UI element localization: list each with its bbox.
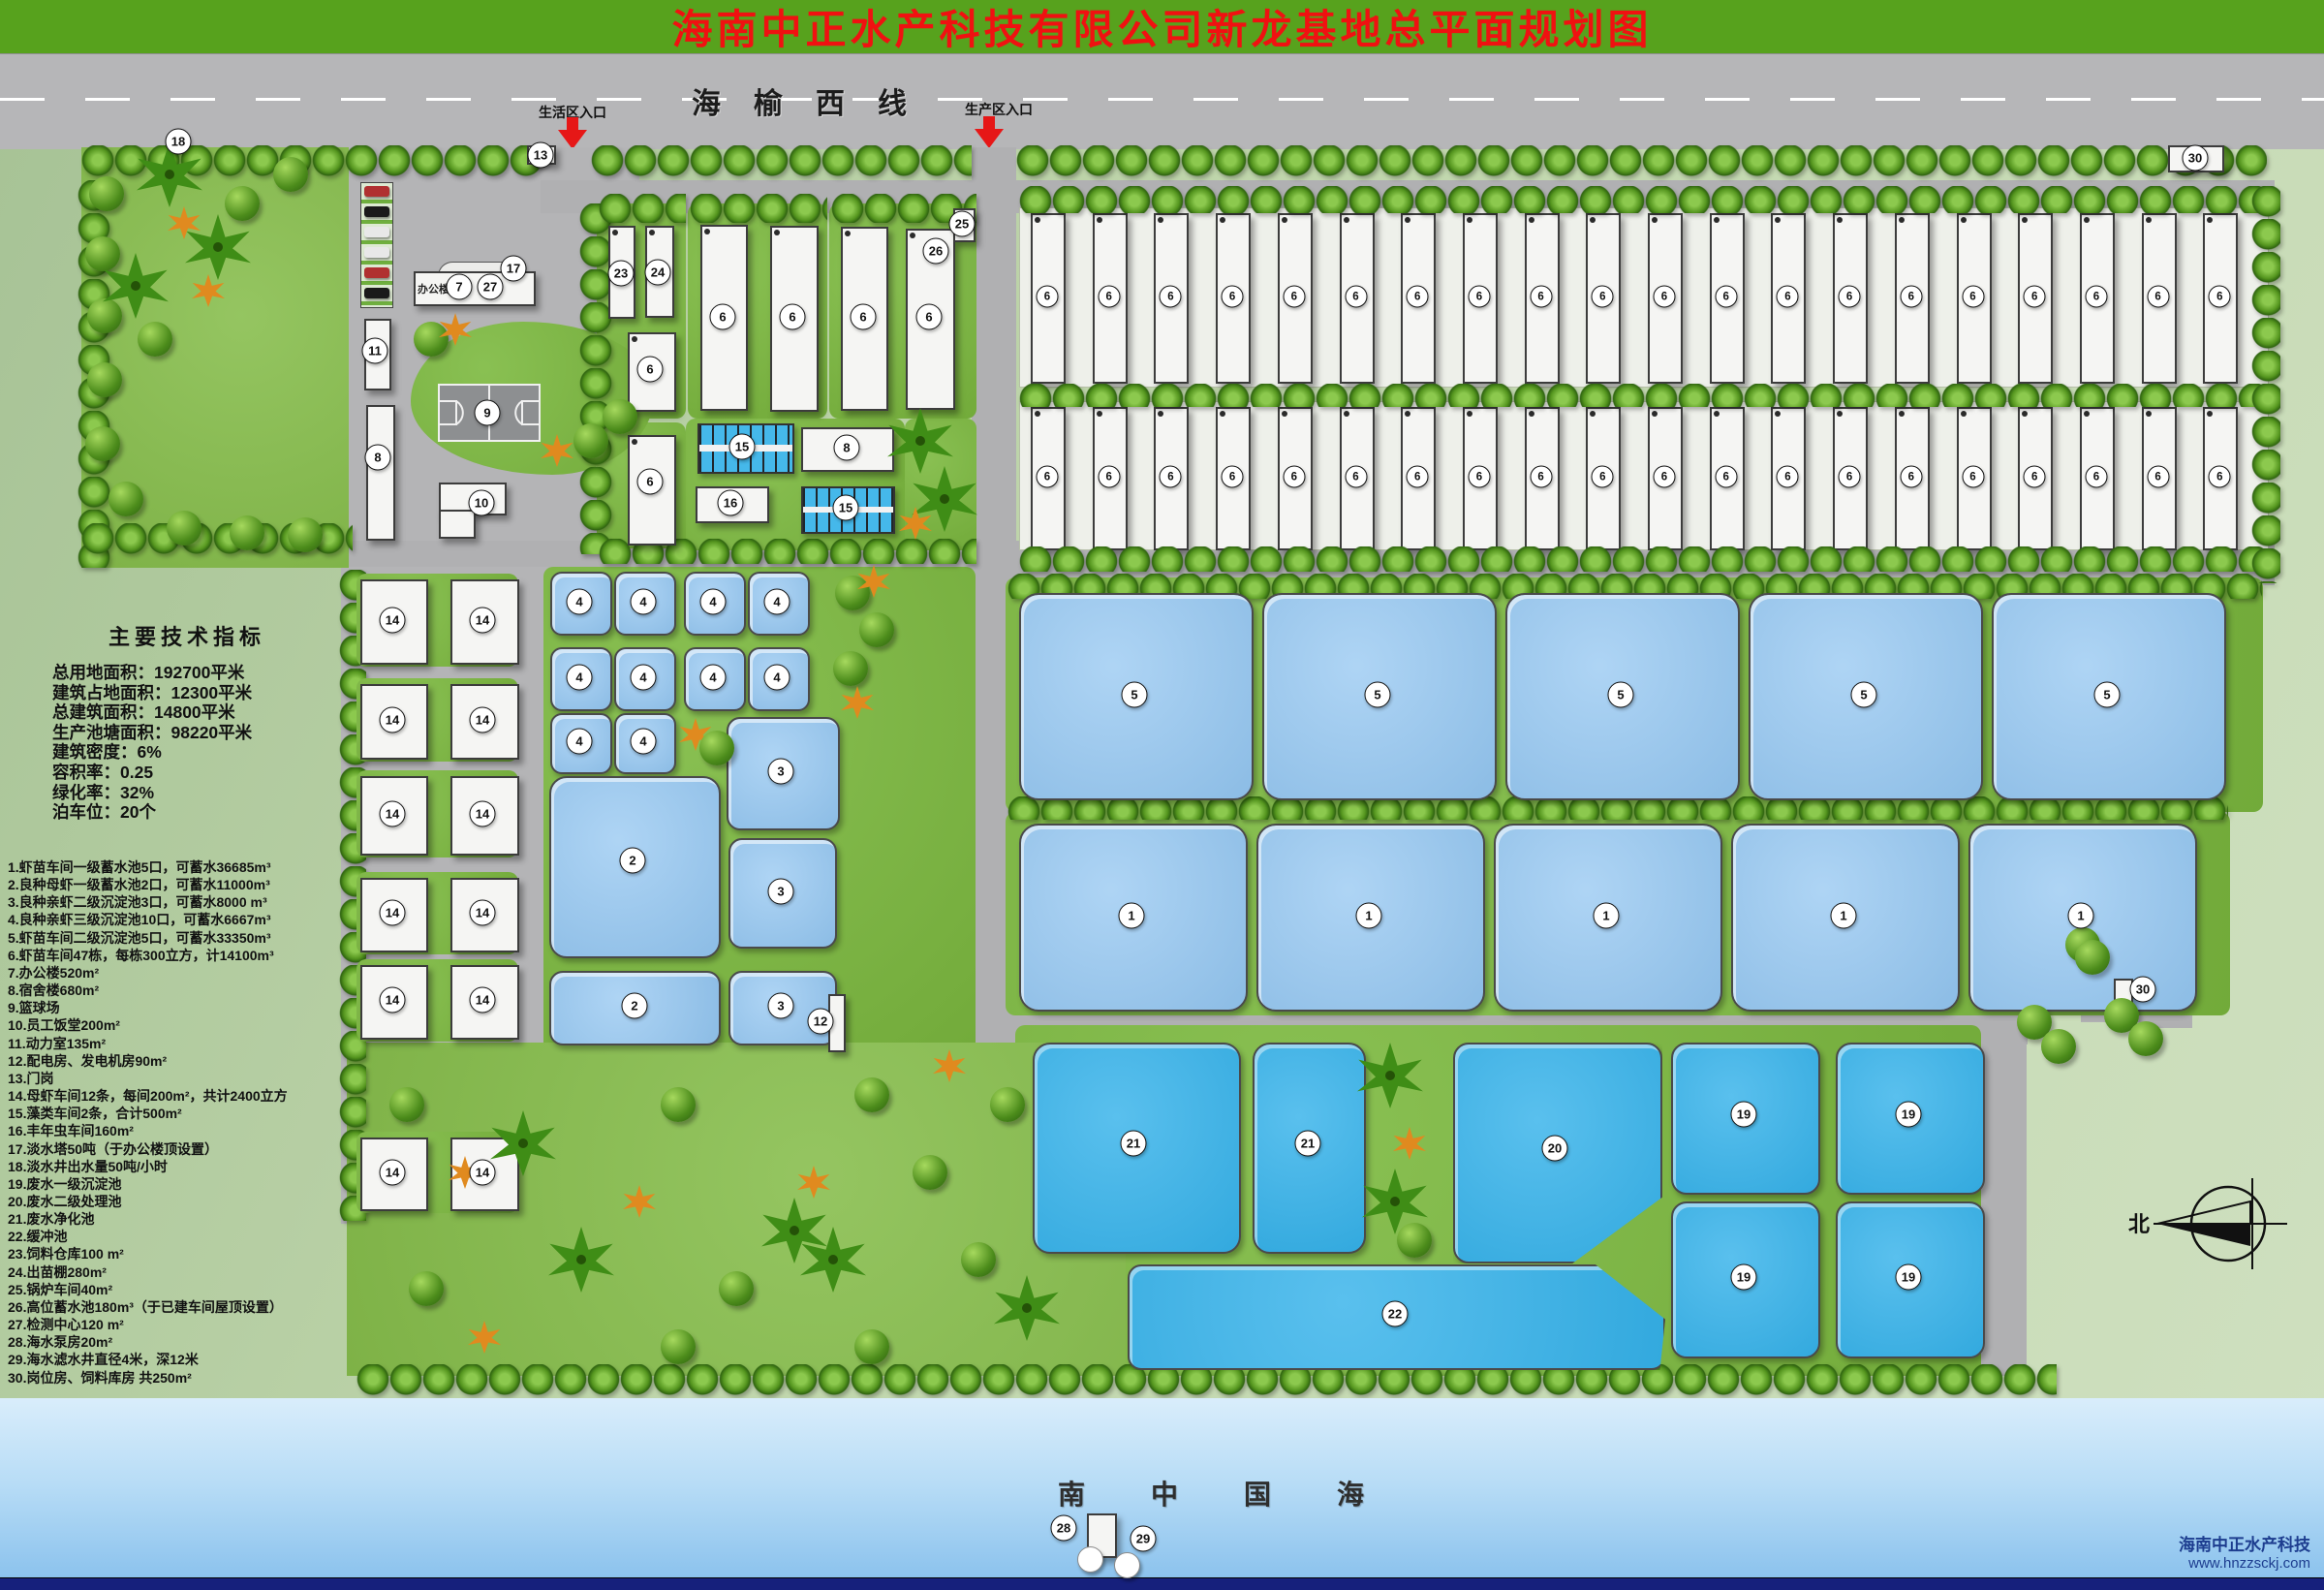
legend-item: 30.岗位房、饲料库房 共250m² [8, 1369, 288, 1387]
legend-item: 11.动力室135m² [8, 1035, 288, 1052]
tree-icon [87, 298, 122, 333]
car [364, 288, 389, 298]
marker-6: 6 [2147, 466, 2169, 488]
entrance-living-arrow-icon [558, 117, 587, 149]
marker-6: 6 [1839, 286, 1861, 308]
legend-item: 10.员工饭堂200m² [8, 1016, 288, 1034]
marker-4: 4 [700, 589, 727, 615]
parking-lot [360, 182, 393, 308]
page-title: 海南中正水产科技有限公司新龙基地总平面规划图 [671, 0, 1652, 56]
sea-label: 南中国海 [1058, 1474, 1430, 1512]
tree-icon [661, 1329, 696, 1364]
marker-6: 6 [637, 357, 664, 383]
title-bar: 海南中正水产科技有限公司新龙基地总平面规划图 [0, 0, 2324, 53]
tree-icon [961, 1242, 996, 1277]
marker-6: 6 [2085, 466, 2107, 488]
tree-icon [389, 1087, 424, 1122]
marker-6: 6 [1468, 466, 1490, 488]
seawater-filter-well-29 [1077, 1546, 1103, 1573]
marker-6: 6 [1654, 466, 1676, 488]
marker-6: 6 [1962, 286, 1984, 308]
marker-6: 6 [851, 304, 877, 330]
legend-item: 16.丰年虫车间160m² [8, 1122, 288, 1139]
tree-icon [2128, 1021, 2163, 1056]
marker-21: 21 [1295, 1131, 1321, 1157]
marker-6: 6 [1530, 466, 1552, 488]
marker-4: 4 [764, 665, 790, 691]
marker-6: 6 [1098, 466, 1120, 488]
road-centerline [0, 98, 2324, 101]
marker-12: 12 [808, 1009, 834, 1035]
legend-list: 1.虾苗车间一级蓄水池5口，可蓄水36685m³2.良种母虾一级蓄水池2口，可蓄… [8, 858, 288, 1387]
marker-23: 23 [608, 261, 635, 287]
legend-item: 21.废水净化池 [8, 1210, 288, 1228]
tree-icon [699, 731, 734, 765]
marker-6: 6 [1407, 466, 1429, 488]
marker-6: 6 [710, 304, 736, 330]
marker-2: 2 [620, 848, 646, 874]
marker-6: 6 [1037, 466, 1059, 488]
office-label: 办公楼 [418, 281, 449, 296]
marker-6: 6 [1962, 466, 1984, 488]
tree-icon [273, 157, 308, 192]
indicator-line: 泊车位：20个 [52, 802, 252, 823]
marker-15: 15 [833, 495, 859, 521]
marker-6: 6 [1407, 286, 1429, 308]
marker-6: 6 [2024, 466, 2046, 488]
marker-6: 6 [1160, 466, 1182, 488]
production-entrance-road [972, 147, 1016, 585]
marker-21: 21 [1121, 1131, 1147, 1157]
marker-6: 6 [780, 304, 806, 330]
legend-item: 25.锅炉车间40m² [8, 1281, 288, 1298]
treecol-east [2251, 186, 2280, 583]
marker-13: 13 [528, 142, 554, 169]
tree-icon [409, 1271, 444, 1306]
marker-19: 19 [1896, 1102, 1922, 1128]
legend-item: 29.海水滤水井直径4米，深12米 [8, 1351, 288, 1368]
bottom-border [0, 1577, 2324, 1590]
treerow-top-east [1016, 145, 2267, 180]
marker-6: 6 [1715, 286, 1737, 308]
legend-item: 20.废水二级处理池 [8, 1193, 288, 1210]
treerow-panel-south [1019, 546, 2267, 572]
marker-5: 5 [1608, 682, 1634, 708]
marker-6: 6 [1222, 466, 1244, 488]
legend-item: 3.良种亲虾二级沉淀池3口，可蓄水8000 m³ [8, 893, 288, 911]
marker-1: 1 [2068, 903, 2094, 929]
legend-item: 17.淡水塔50吨（于办公楼顶设置） [8, 1140, 288, 1158]
southeast-road [1979, 1025, 2027, 1376]
legend-item: 6.虾苗车间47栋，每栋300立方，计14100m³ [8, 947, 288, 964]
tree-icon [833, 651, 868, 686]
tree-icon [913, 1155, 947, 1190]
marker-10: 10 [469, 490, 495, 516]
legend-item: 19.废水一级沉淀池 [8, 1175, 288, 1193]
marker-6: 6 [1098, 286, 1120, 308]
legend-item: 4.良种亲虾三级沉淀池10口，可蓄水6667m³ [8, 911, 288, 928]
marker-6: 6 [1283, 286, 1305, 308]
tree-icon [89, 176, 124, 211]
marker-6: 6 [916, 304, 943, 330]
canteen-10-b [439, 510, 476, 539]
treerow-top-mid [591, 145, 972, 180]
tree-icon [87, 362, 122, 397]
legend-item: 7.办公楼520m² [8, 964, 288, 982]
marker-6: 6 [1900, 466, 1922, 488]
marker-6: 6 [1900, 286, 1922, 308]
legend-item: 8.宿舍楼680m² [8, 982, 288, 999]
marker-5: 5 [1122, 682, 1148, 708]
indicators-list: 总用地面积：192700平米建筑占地面积：12300平米总建筑面积：14800平… [52, 663, 252, 823]
marker-16: 16 [718, 490, 744, 516]
tree-icon [85, 236, 120, 271]
marker-8: 8 [365, 445, 391, 471]
dormitory-8 [366, 405, 395, 541]
seawater-filter-well-29 [1114, 1552, 1140, 1578]
marker-14: 14 [380, 987, 406, 1013]
legend-item: 2.良种母虾一级蓄水池2口，可蓄水11000m³ [8, 876, 288, 893]
marker-20: 20 [1542, 1136, 1568, 1162]
treerow-block-a [599, 194, 686, 223]
marker-6: 6 [1037, 286, 1059, 308]
car [364, 227, 389, 237]
tree-icon [573, 423, 608, 458]
legend-item: 28.海水泵房20m² [8, 1333, 288, 1351]
marker-6: 6 [1345, 286, 1367, 308]
marker-6: 6 [2209, 286, 2231, 308]
marker-1: 1 [1594, 903, 1620, 929]
tree-icon [85, 426, 120, 461]
car [364, 267, 389, 278]
marker-30: 30 [2130, 977, 2156, 1003]
compass-icon: 北 [2126, 1170, 2291, 1277]
marker-1: 1 [1119, 903, 1145, 929]
marker-26: 26 [923, 238, 949, 265]
marker-7: 7 [447, 274, 473, 300]
marker-6: 6 [1777, 466, 1799, 488]
marker-6: 6 [1160, 286, 1182, 308]
marker-6: 6 [1777, 286, 1799, 308]
legend-item: 14.母虾车间12条，每间200m²，共计2400立方 [8, 1087, 288, 1105]
marker-14: 14 [380, 608, 406, 634]
marker-6: 6 [1839, 466, 1861, 488]
marker-14: 14 [380, 1160, 406, 1186]
marker-4: 4 [567, 729, 593, 755]
marker-6: 6 [1715, 466, 1737, 488]
marker-15: 15 [729, 434, 756, 460]
indicator-line: 建筑密度：6% [52, 742, 252, 763]
legend-item: 15.藻类车间2条，合计500m² [8, 1105, 288, 1122]
marker-25: 25 [949, 211, 976, 237]
marker-6: 6 [1283, 466, 1305, 488]
marker-18: 18 [166, 129, 192, 155]
indicator-line: 建筑占地面积：12300平米 [52, 683, 252, 703]
marker-14: 14 [470, 801, 496, 827]
marker-24: 24 [645, 260, 671, 286]
marker-4: 4 [631, 729, 657, 755]
legend-item: 9.篮球场 [8, 999, 288, 1016]
tree-icon [2075, 940, 2110, 975]
marker-6: 6 [1468, 286, 1490, 308]
sea: 南中国海 海南中正水产科技 www.hnzzsckj.com [0, 1398, 2324, 1590]
car [364, 206, 389, 217]
marker-19: 19 [1896, 1264, 1922, 1291]
marker-6: 6 [1345, 466, 1367, 488]
tree-icon [167, 511, 201, 546]
marker-4: 4 [567, 589, 593, 615]
marker-4: 4 [567, 665, 593, 691]
marker-14: 14 [470, 900, 496, 926]
indicator-line: 容积率：0.25 [52, 763, 252, 783]
marker-14: 14 [470, 1160, 496, 1186]
marker-4: 4 [631, 589, 657, 615]
treerow-panel-top [1019, 186, 2267, 213]
treerow-panel-mid [1019, 384, 2267, 407]
tree-icon [990, 1087, 1025, 1122]
tree-icon [108, 482, 143, 516]
treerow-block-b [690, 194, 827, 223]
indicators-title: 主要技术指标 [108, 620, 265, 651]
tree-icon [225, 186, 260, 221]
marker-4: 4 [700, 665, 727, 691]
tree-icon [230, 515, 264, 550]
tree-icon [835, 576, 870, 610]
marker-6: 6 [2147, 286, 2169, 308]
marker-11: 11 [362, 338, 388, 364]
tree-icon [138, 322, 172, 357]
marker-6: 6 [2209, 466, 2231, 488]
legend-item: 24.出苗棚280m² [8, 1263, 288, 1281]
marker-22: 22 [1382, 1301, 1409, 1327]
tree-icon [719, 1271, 754, 1306]
tree-icon [1397, 1223, 1432, 1258]
marker-19: 19 [1731, 1264, 1757, 1291]
indicator-line: 总建筑面积：14800平米 [52, 702, 252, 723]
highway: 海榆西线 [0, 53, 2324, 149]
marker-28: 28 [1051, 1515, 1077, 1542]
marker-6: 6 [2024, 286, 2046, 308]
legend-item: 26.高位蓄水池180m³（于已建车间屋顶设置） [8, 1298, 288, 1316]
marker-6: 6 [1592, 286, 1614, 308]
marker-8: 8 [834, 435, 860, 461]
marker-6: 6 [2085, 286, 2107, 308]
marker-29: 29 [1131, 1526, 1157, 1552]
marker-3: 3 [768, 759, 794, 785]
legend-item: 27.检测中心120 m² [8, 1316, 288, 1333]
tree-icon [603, 399, 637, 434]
tree-icon [854, 1329, 889, 1364]
logo-company: 海南中正水产科技 [2063, 1536, 2310, 1554]
legend-item: 18.淡水井出水量50吨/小时 [8, 1158, 288, 1175]
marker-14: 14 [380, 707, 406, 733]
marker-5: 5 [1365, 682, 1391, 708]
car [364, 186, 389, 197]
marker-30: 30 [2183, 145, 2209, 171]
marker-14: 14 [470, 987, 496, 1013]
legend-item: 22.缓冲池 [8, 1228, 288, 1245]
marker-14: 14 [470, 707, 496, 733]
treecol-block-a-west [579, 203, 612, 554]
marker-6: 6 [1592, 466, 1614, 488]
highway-name: 海榆西线 [692, 79, 940, 122]
legend-item: 23.饲料仓库100 m² [8, 1245, 288, 1263]
marker-3: 3 [768, 993, 794, 1019]
marker-17: 17 [501, 256, 527, 282]
compass-north-label: 北 [2128, 1212, 2150, 1236]
indicator-line: 总用地面积：192700平米 [52, 663, 252, 683]
indicator-line: 绿化率：32% [52, 783, 252, 803]
tree-icon [661, 1087, 696, 1122]
legend-item: 1.虾苗车间一级蓄水池5口，可蓄水36685m³ [8, 858, 288, 876]
entrance-production-arrow-icon [975, 116, 1004, 148]
marker-4: 4 [631, 665, 657, 691]
marker-2: 2 [622, 993, 648, 1019]
marker-14: 14 [380, 900, 406, 926]
indicator-line: 生产池塘面积：98220平米 [52, 723, 252, 743]
marker-5: 5 [1851, 682, 1877, 708]
marker-6: 6 [1530, 286, 1552, 308]
legend-item: 12.配电房、发电机房90m² [8, 1052, 288, 1070]
legend-item: 5.虾苗车间二级沉淀池5口，可蓄水33350m³ [8, 929, 288, 947]
marker-14: 14 [380, 801, 406, 827]
marker-27: 27 [478, 274, 504, 300]
marker-19: 19 [1731, 1102, 1757, 1128]
marker-6: 6 [1654, 286, 1676, 308]
tree-icon [854, 1077, 889, 1112]
marker-9: 9 [475, 400, 501, 426]
car [364, 247, 389, 258]
legend-item: 13.门岗 [8, 1070, 288, 1087]
marker-1: 1 [1831, 903, 1857, 929]
marker-14: 14 [470, 608, 496, 634]
site-plan-canvas: 海南中正水产科技有限公司新龙基地总平面规划图 海榆西线 生活区入口 生产区入口 … [0, 0, 2324, 1590]
tree-icon [859, 612, 894, 647]
tree-icon [414, 322, 449, 357]
company-logo: 海南中正水产科技 www.hnzzsckj.com [2063, 1536, 2310, 1573]
logo-website: www.hnzzsckj.com [2063, 1554, 2310, 1573]
marker-5: 5 [2094, 682, 2121, 708]
marker-4: 4 [764, 589, 790, 615]
marker-6: 6 [1222, 286, 1244, 308]
marker-1: 1 [1356, 903, 1382, 929]
tree-icon [2041, 1029, 2076, 1064]
tree-icon [288, 517, 323, 552]
marker-6: 6 [637, 469, 664, 495]
marker-3: 3 [768, 879, 794, 905]
